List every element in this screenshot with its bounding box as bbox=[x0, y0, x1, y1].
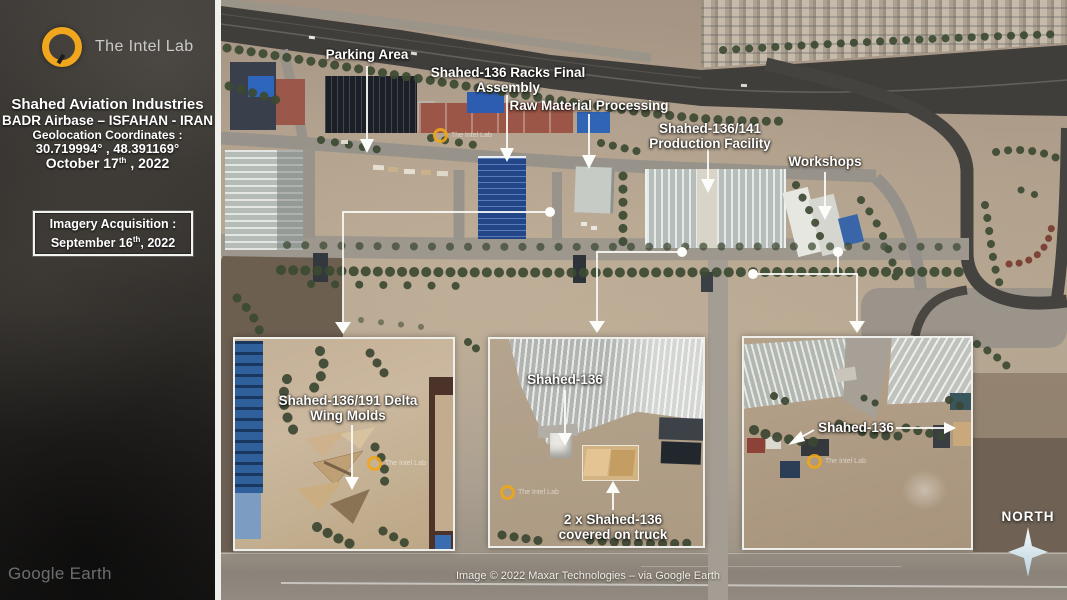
north-label: NORTH bbox=[1002, 509, 1055, 524]
label-production-facility: Shahed-136/141 Production Facility bbox=[649, 121, 771, 151]
label-shahed-136: Shahed-136 bbox=[818, 420, 894, 435]
inset-left-detail bbox=[235, 339, 453, 549]
intel-lab-imagery-report: The Intel Lab Parking Area Shahed-136 Ra… bbox=[0, 0, 1067, 600]
report-subtitle: BADR Airbase – ISFAHAN - IRAN bbox=[0, 113, 215, 128]
google-earth-watermark: Google Earth bbox=[8, 564, 112, 584]
label-arrowheads bbox=[360, 139, 832, 220]
label-raw-material: Raw Material Processing bbox=[509, 98, 668, 113]
satellite-scene: The Intel Lab Parking Area Shahed-136 Ra… bbox=[221, 0, 1067, 600]
intel-lab-ring-icon bbox=[807, 454, 822, 469]
inset-delta-wing-molds: Shahed-136/191 Delta Wing Molds The Inte… bbox=[233, 337, 455, 551]
inset-shahed-yard: Shahed-136 The Intel Lab bbox=[742, 336, 973, 550]
intel-lab-ring-icon bbox=[367, 456, 382, 471]
intel-lab-watermark: The Intel Lab bbox=[367, 456, 426, 471]
sidebar-divider bbox=[215, 0, 221, 600]
info-sidebar: The Intel Lab Shahed Aviation Industries… bbox=[0, 0, 215, 600]
inset-right-detail bbox=[744, 338, 971, 548]
label-delta-wing-molds: Shahed-136/191 Delta Wing Molds bbox=[279, 393, 418, 423]
report-date: October 17th , 2022 bbox=[0, 155, 215, 171]
intel-lab-logo-icon bbox=[42, 27, 82, 67]
geolocation-label: Geolocation Coordinates : bbox=[0, 128, 215, 142]
logo-notch bbox=[57, 54, 66, 65]
acquisition-date: September 16th, 2022 bbox=[35, 232, 191, 251]
intel-lab-watermark: The Intel Lab bbox=[433, 128, 492, 143]
intel-lab-watermark: The Intel Lab bbox=[807, 454, 866, 469]
label-shahed-136: Shahed-136 bbox=[527, 372, 603, 387]
label-parking-area: Parking Area bbox=[326, 47, 409, 62]
imagery-acquisition-box: Imagery Acquisition : September 16th, 20… bbox=[33, 211, 193, 256]
acquisition-label: Imagery Acquisition : bbox=[35, 217, 191, 232]
intel-lab-ring-icon bbox=[500, 485, 515, 500]
red-shrub-arc bbox=[1009, 224, 1052, 264]
intel-lab-ring-icon bbox=[433, 128, 448, 143]
label-covered-on-truck: 2 x Shahed-136 covered on truck bbox=[559, 512, 668, 542]
connector-arrowheads bbox=[335, 321, 865, 334]
inset-shahed-truck: Shahed-136 2 x Shahed-136 covered on tru… bbox=[488, 337, 705, 548]
intel-lab-watermark: The Intel Lab bbox=[500, 485, 559, 500]
label-racks-final-assembly: Shahed-136 Racks Final Assembly bbox=[431, 65, 586, 95]
tree-rows bbox=[227, 34, 1063, 368]
brand-name: The Intel Lab bbox=[95, 38, 194, 56]
geolocation-coordinates: 30.719994° , 48.391169° bbox=[0, 141, 215, 156]
wing-molds bbox=[297, 427, 375, 524]
copyright-text: Image © 2022 Maxar Technologies – via Go… bbox=[456, 570, 720, 582]
watermark-text: The Intel Lab bbox=[451, 132, 492, 139]
label-workshops: Workshops bbox=[788, 154, 861, 169]
report-title: Shahed Aviation Industries bbox=[0, 96, 215, 113]
